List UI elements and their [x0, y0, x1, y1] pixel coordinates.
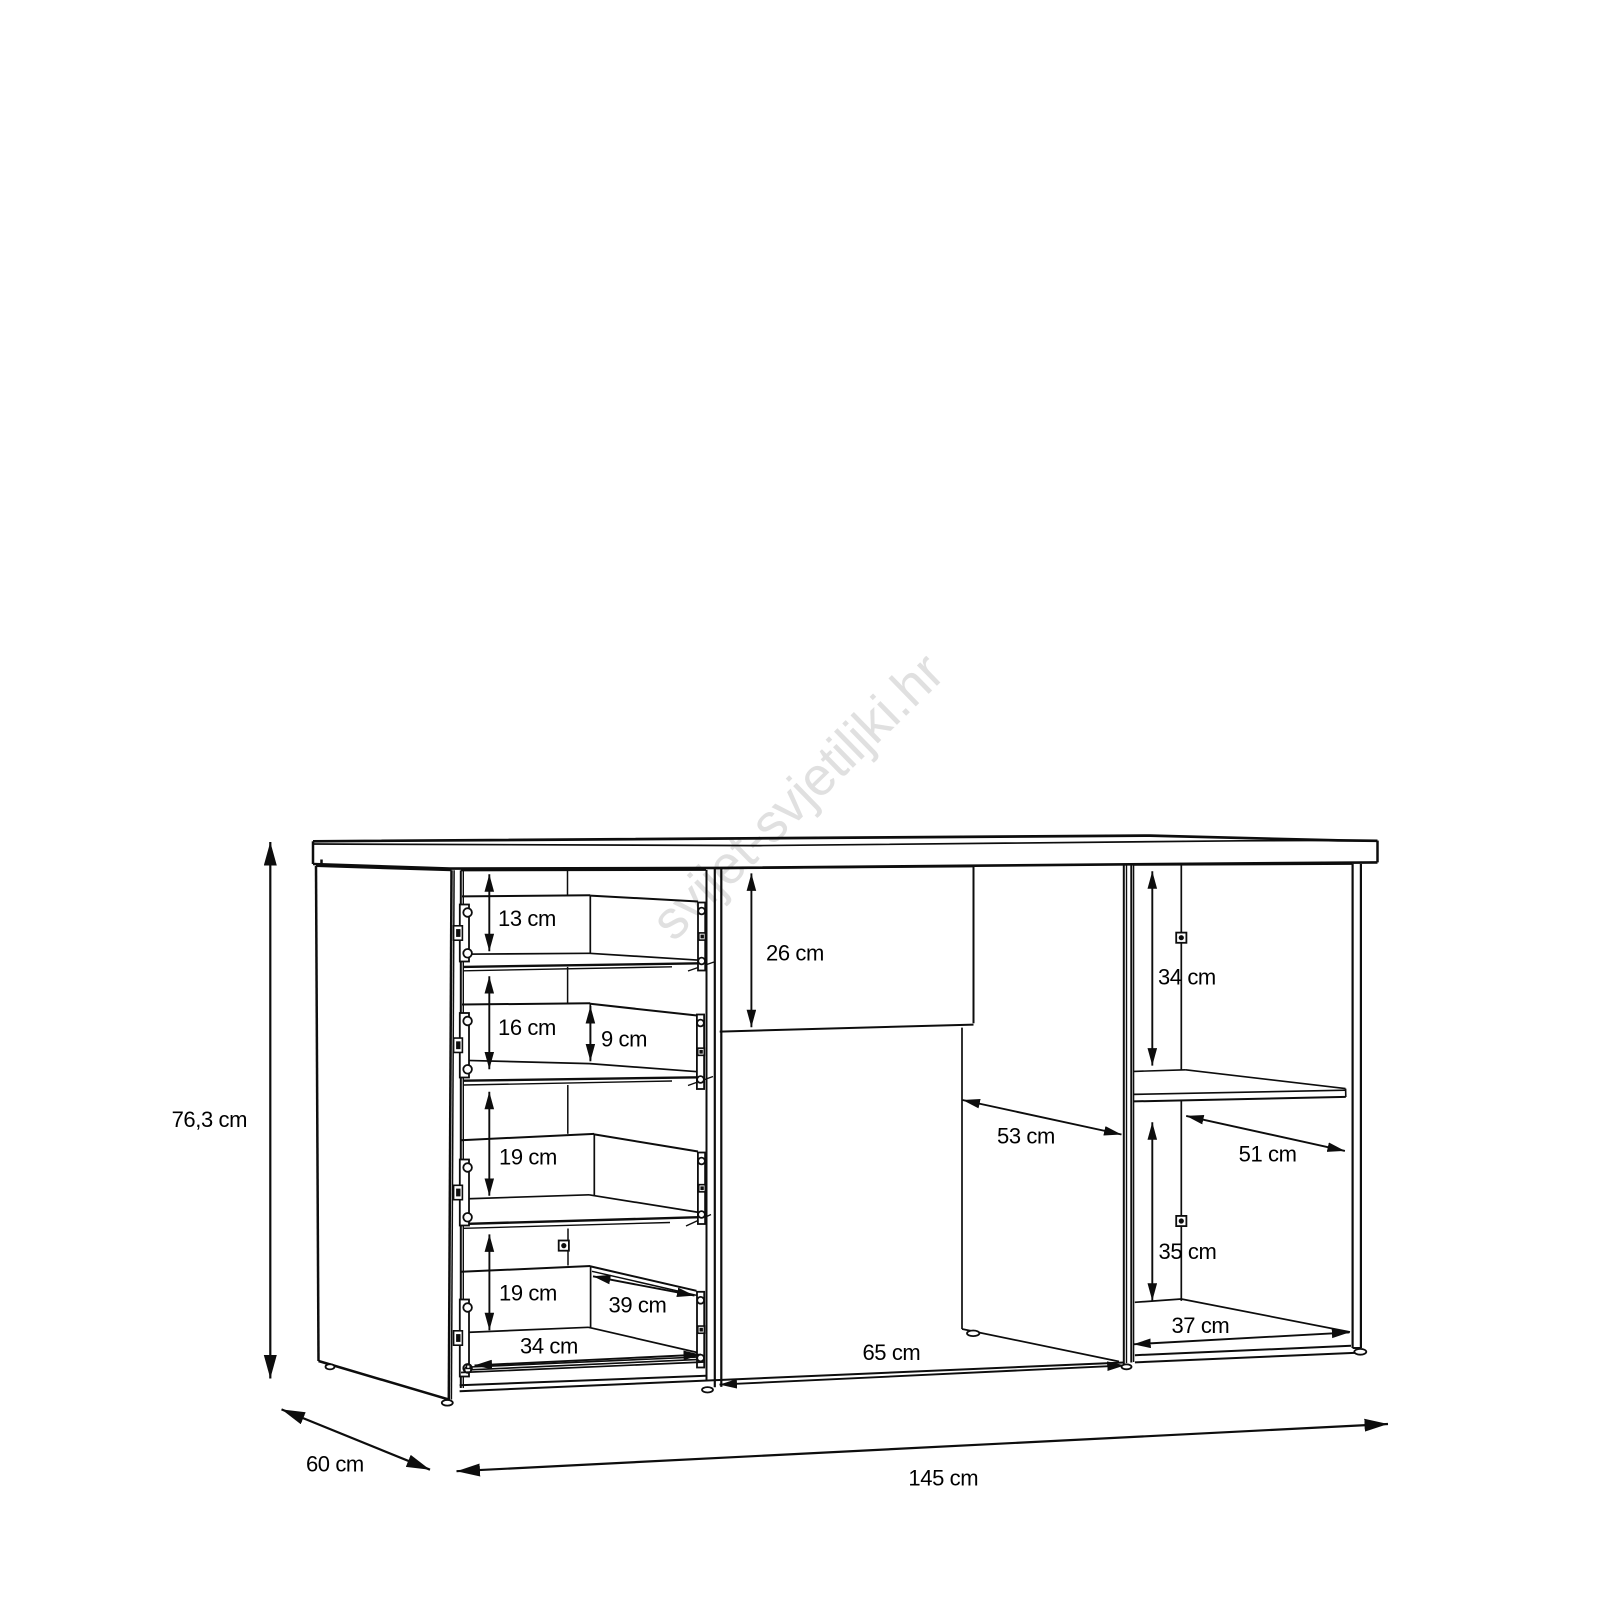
svg-text:65 cm: 65 cm [862, 1340, 920, 1365]
svg-text:34 cm: 34 cm [520, 1333, 578, 1358]
svg-text:19 cm: 19 cm [499, 1280, 557, 1305]
svg-text:53 cm: 53 cm [997, 1124, 1055, 1149]
svg-text:19 cm: 19 cm [499, 1145, 557, 1170]
svg-text:39 cm: 39 cm [609, 1293, 667, 1318]
svg-text:37 cm: 37 cm [1171, 1313, 1229, 1338]
svg-text:9 cm: 9 cm [601, 1027, 647, 1052]
svg-text:76,3 cm: 76,3 cm [172, 1107, 247, 1132]
svg-text:16 cm: 16 cm [498, 1015, 556, 1040]
svg-text:13 cm: 13 cm [498, 906, 556, 931]
svg-text:60 cm: 60 cm [306, 1452, 364, 1477]
svg-text:51 cm: 51 cm [1239, 1142, 1297, 1167]
svg-text:35 cm: 35 cm [1159, 1239, 1217, 1264]
svg-text:26 cm: 26 cm [766, 940, 824, 965]
svg-text:34 cm: 34 cm [1158, 965, 1216, 990]
svg-text:145 cm: 145 cm [908, 1466, 978, 1491]
